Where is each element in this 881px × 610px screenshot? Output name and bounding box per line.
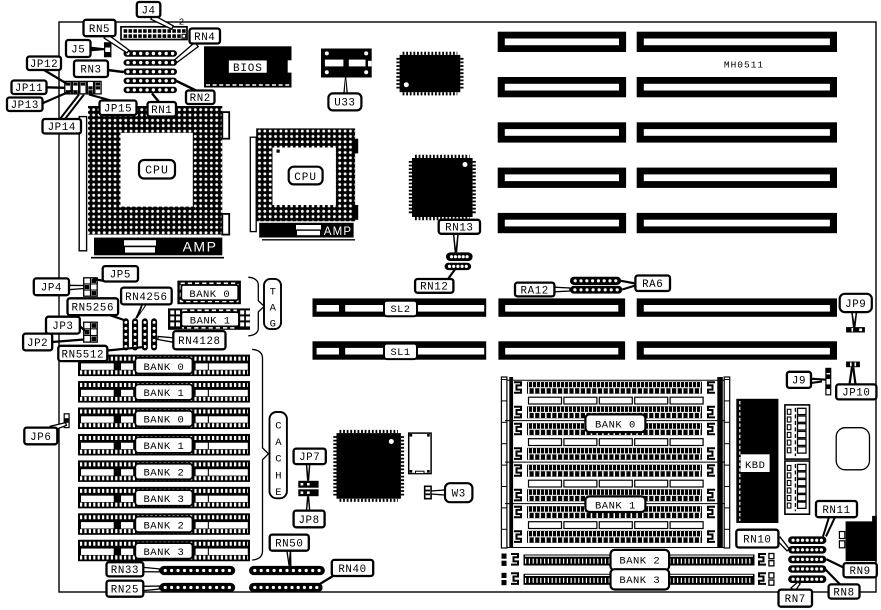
svg-text:BANK 0: BANK 0 [143, 362, 184, 374]
svg-text:A: A [275, 437, 282, 449]
svg-text:RN13: RN13 [445, 223, 473, 235]
svg-text:SL1: SL1 [390, 347, 410, 359]
svg-text:JP6: JP6 [30, 432, 51, 444]
svg-text:C: C [275, 454, 281, 466]
svg-text:BANK 3: BANK 3 [143, 494, 184, 506]
svg-text:BANK 0: BANK 0 [189, 289, 230, 301]
svg-text:BANK 1: BANK 1 [595, 501, 636, 513]
svg-text:BANK 0: BANK 0 [143, 415, 184, 427]
svg-text:BIOS: BIOS [233, 63, 263, 75]
svg-text:JP7: JP7 [299, 452, 320, 464]
svg-text:JP12: JP12 [30, 59, 58, 71]
svg-text:KBD: KBD [745, 460, 765, 472]
svg-text:RN4128: RN4128 [178, 336, 220, 348]
svg-text:JP3: JP3 [52, 321, 73, 333]
svg-text:CPU: CPU [145, 165, 169, 178]
svg-text:RN8: RN8 [833, 587, 854, 599]
svg-text:RN25: RN25 [111, 585, 139, 597]
svg-text:CPU: CPU [294, 172, 317, 184]
svg-text:JP15: JP15 [104, 104, 132, 116]
svg-text:BANK 2: BANK 2 [619, 556, 660, 568]
svg-text:MH0511: MH0511 [724, 60, 764, 71]
svg-text:JP11: JP11 [15, 83, 43, 95]
svg-text:G: G [270, 319, 276, 331]
svg-text:C: C [275, 421, 281, 433]
svg-text:RN10: RN10 [743, 534, 771, 546]
svg-text:J4: J4 [141, 5, 155, 17]
svg-text:BANK 0: BANK 0 [595, 420, 636, 432]
svg-text:T: T [270, 287, 276, 299]
svg-text:BANK 3: BANK 3 [619, 575, 660, 587]
svg-text:RN4: RN4 [194, 32, 215, 44]
svg-text:RN4256: RN4256 [125, 292, 167, 304]
svg-text:RN12: RN12 [420, 282, 448, 294]
svg-text:RN1: RN1 [151, 105, 172, 117]
svg-text:BANK 1: BANK 1 [143, 388, 184, 400]
svg-text:AMP: AMP [183, 239, 218, 255]
svg-text:J9: J9 [792, 376, 806, 388]
svg-text:RN50: RN50 [275, 539, 303, 551]
svg-text:U33: U33 [334, 98, 355, 110]
svg-text:BANK 2: BANK 2 [143, 468, 184, 480]
svg-text:2: 2 [179, 18, 184, 28]
svg-text:RA12: RA12 [521, 285, 549, 297]
svg-text:RN9: RN9 [850, 566, 871, 578]
svg-text:BANK 3: BANK 3 [143, 547, 184, 559]
svg-text:JP2: JP2 [27, 338, 48, 350]
svg-text:H: H [275, 470, 281, 482]
svg-text:JP4: JP4 [41, 283, 62, 295]
svg-text:RN2: RN2 [190, 93, 211, 105]
svg-text:RN3: RN3 [80, 65, 101, 77]
svg-text:RA6: RA6 [642, 279, 663, 291]
svg-text:AMP: AMP [324, 226, 353, 238]
svg-text:JP13: JP13 [11, 100, 39, 112]
svg-text:E: E [275, 487, 281, 499]
svg-text:JP10: JP10 [842, 388, 870, 400]
svg-text:BANK 1: BANK 1 [190, 315, 231, 327]
svg-text:SL2: SL2 [390, 304, 410, 316]
svg-text:RN5512: RN5512 [62, 349, 104, 361]
svg-text:W3: W3 [452, 489, 466, 501]
svg-text:RN11: RN11 [822, 505, 850, 517]
svg-text:JP9: JP9 [845, 299, 866, 311]
svg-text:A: A [270, 303, 277, 315]
svg-text:RN33: RN33 [111, 565, 139, 577]
svg-text:JP8: JP8 [298, 515, 319, 527]
svg-text:RN5: RN5 [89, 24, 110, 36]
svg-text:RN5256: RN5256 [72, 303, 114, 315]
svg-text:J5: J5 [71, 44, 85, 56]
svg-text:RN40: RN40 [338, 564, 366, 576]
svg-text:RN7: RN7 [785, 594, 806, 606]
svg-text:BANK 2: BANK 2 [143, 521, 184, 533]
svg-text:BANK 1: BANK 1 [143, 441, 184, 453]
svg-text:JP14: JP14 [48, 122, 76, 134]
svg-text:JP5: JP5 [110, 270, 131, 282]
